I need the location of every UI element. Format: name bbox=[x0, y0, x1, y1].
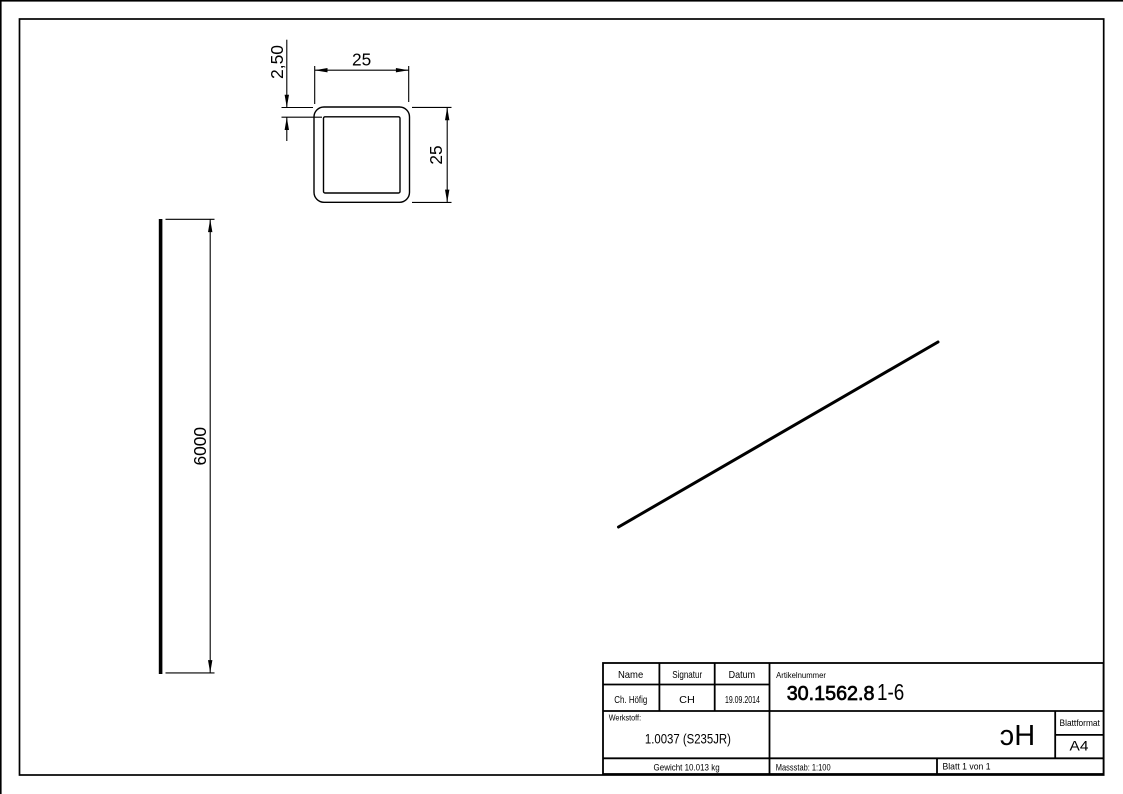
svg-text:Blatt 1 von 1: Blatt 1 von 1 bbox=[943, 762, 991, 772]
svg-text:Blattformat: Blattformat bbox=[1060, 718, 1101, 729]
svg-text:Artikelnummer: Artikelnummer bbox=[776, 671, 826, 680]
svg-text:25: 25 bbox=[352, 50, 371, 70]
svg-text:30.1562.8: 30.1562.8 bbox=[787, 682, 875, 705]
svg-text:A4: A4 bbox=[1070, 739, 1089, 754]
svg-text:H: H bbox=[1014, 720, 1035, 752]
svg-text:2,50: 2,50 bbox=[267, 45, 287, 79]
svg-text:Werkstoff:: Werkstoff: bbox=[609, 714, 641, 723]
svg-text:Name: Name bbox=[618, 670, 644, 681]
svg-text:Ch. Höfig: Ch. Höfig bbox=[614, 695, 647, 706]
svg-text:Signatur: Signatur bbox=[672, 670, 702, 681]
svg-text:CH: CH bbox=[679, 695, 695, 706]
svg-text:c: c bbox=[1000, 720, 1015, 752]
svg-text:19.09.2014: 19.09.2014 bbox=[725, 695, 760, 706]
svg-text:6000: 6000 bbox=[190, 427, 210, 466]
svg-text:Gewicht 10.013 kg: Gewicht 10.013 kg bbox=[654, 762, 720, 772]
svg-text:1-6: 1-6 bbox=[877, 679, 904, 705]
svg-text:25: 25 bbox=[426, 145, 446, 164]
svg-text:Massstab: 1:100: Massstab: 1:100 bbox=[776, 762, 831, 772]
svg-text:Datum: Datum bbox=[729, 670, 756, 681]
svg-text:1.0037 (S235JR): 1.0037 (S235JR) bbox=[645, 731, 731, 747]
